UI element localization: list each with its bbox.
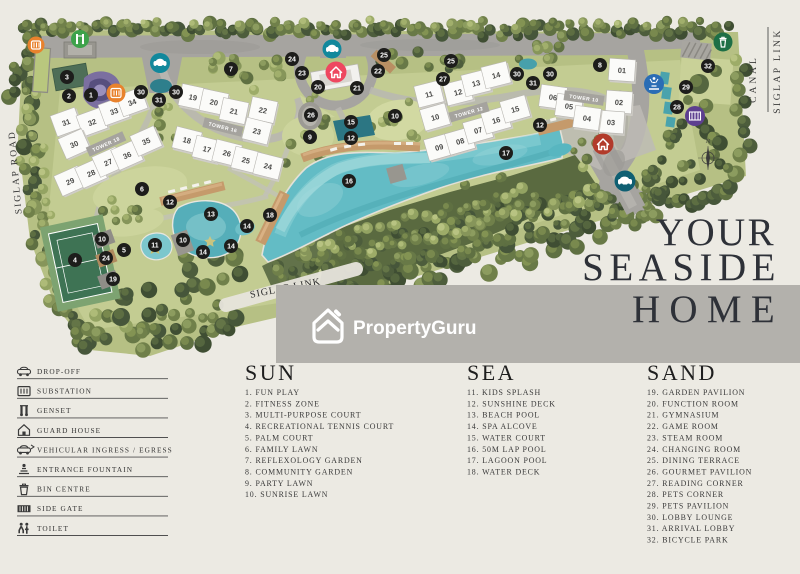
svg-text:10: 10 <box>98 236 106 243</box>
svg-text:28. PETS CORNER: 28. PETS CORNER <box>647 490 724 499</box>
svg-text:22: 22 <box>374 68 382 75</box>
svg-text:26. GOURMET PAVILION: 26. GOURMET PAVILION <box>647 467 752 476</box>
svg-text:10: 10 <box>179 237 187 244</box>
svg-text:18: 18 <box>266 212 274 219</box>
svg-text:6. FAMILY LAWN: 6. FAMILY LAWN <box>245 445 318 454</box>
svg-text:9. PARTY LAWN: 9. PARTY LAWN <box>245 479 313 488</box>
svg-text:SIGLAP LINK: SIGLAP LINK <box>773 28 783 113</box>
svg-text:02: 02 <box>614 98 623 108</box>
svg-text:HOME: HOME <box>632 288 784 331</box>
svg-text:18. WATER DECK: 18. WATER DECK <box>467 467 540 476</box>
svg-text:25: 25 <box>447 58 455 65</box>
svg-text:21: 21 <box>353 85 361 92</box>
svg-text:29: 29 <box>682 84 690 91</box>
svg-text:19: 19 <box>109 276 117 283</box>
svg-text:PropertyGuru: PropertyGuru <box>353 318 477 339</box>
svg-text:01: 01 <box>617 66 626 76</box>
svg-text:SEA: SEA <box>467 360 516 385</box>
svg-text:11. KIDS SPLASH: 11. KIDS SPLASH <box>467 388 541 397</box>
svg-text:5: 5 <box>122 247 126 254</box>
svg-text:CANAL: CANAL <box>749 55 759 103</box>
svg-text:23: 23 <box>298 70 306 77</box>
svg-text:1: 1 <box>89 92 93 99</box>
svg-text:27. READING CORNER: 27. READING CORNER <box>647 479 744 488</box>
svg-text:30: 30 <box>172 89 180 96</box>
svg-text:31: 31 <box>529 80 537 87</box>
svg-text:14: 14 <box>243 223 251 230</box>
svg-text:25: 25 <box>380 52 388 59</box>
svg-text:9: 9 <box>308 134 312 141</box>
svg-text:31: 31 <box>155 97 163 104</box>
svg-text:SUN: SUN <box>245 360 297 385</box>
svg-text:16. 50M LAP POOL: 16. 50M LAP POOL <box>467 445 547 454</box>
svg-text:16: 16 <box>345 178 353 185</box>
svg-text:8: 8 <box>598 62 602 69</box>
svg-text:24: 24 <box>102 255 110 262</box>
svg-text:2. FITNESS ZONE: 2. FITNESS ZONE <box>245 399 320 408</box>
svg-text:26: 26 <box>307 112 315 119</box>
svg-text:SIDE GATE: SIDE GATE <box>37 504 84 513</box>
svg-text:31. ARRIVAL LOBBY: 31. ARRIVAL LOBBY <box>647 524 735 533</box>
svg-text:3. MULTI-PURPOSE COURT: 3. MULTI-PURPOSE COURT <box>245 411 361 420</box>
svg-text:GENSET: GENSET <box>37 406 72 415</box>
svg-text:4: 4 <box>73 257 77 264</box>
svg-text:TOILET: TOILET <box>37 524 69 533</box>
svg-text:20: 20 <box>314 84 322 91</box>
svg-text:29. PETS PAVILION: 29. PETS PAVILION <box>647 502 729 511</box>
svg-text:24. CHANGING ROOM: 24. CHANGING ROOM <box>647 445 741 454</box>
svg-text:8. COMMUNITY GARDEN: 8. COMMUNITY GARDEN <box>245 467 353 476</box>
svg-text:32. BICYCLE PARK: 32. BICYCLE PARK <box>647 536 729 545</box>
svg-text:ENTRANCE FOUNTAIN: ENTRANCE FOUNTAIN <box>37 465 133 474</box>
svg-text:6: 6 <box>140 186 144 193</box>
svg-text:30. LOBBY LOUNGE: 30. LOBBY LOUNGE <box>647 513 733 522</box>
svg-text:14. SPA ALCOVE: 14. SPA ALCOVE <box>467 422 538 431</box>
svg-text:7: 7 <box>229 66 233 73</box>
svg-text:13. BEACH POOL: 13. BEACH POOL <box>467 411 540 420</box>
svg-text:GUARD HOUSE: GUARD HOUSE <box>37 426 101 435</box>
svg-text:11: 11 <box>151 242 159 249</box>
svg-text:4. RECREATIONAL TENNIS COURT: 4. RECREATIONAL TENNIS COURT <box>245 422 394 431</box>
svg-text:30: 30 <box>513 71 521 78</box>
svg-text:28: 28 <box>673 104 681 111</box>
svg-text:SEASIDE: SEASIDE <box>582 246 781 289</box>
svg-text:VEHICULAR INGRESS / EGRESS: VEHICULAR INGRESS / EGRESS <box>37 445 173 454</box>
svg-text:14: 14 <box>199 249 207 256</box>
svg-text:15. WATER COURT: 15. WATER COURT <box>467 433 546 442</box>
svg-text:N: N <box>706 138 711 145</box>
svg-text:21. GYMNASIUM: 21. GYMNASIUM <box>647 411 719 420</box>
svg-text:10. SUNRISE LAWN: 10. SUNRISE LAWN <box>245 490 328 499</box>
svg-text:15: 15 <box>347 119 355 126</box>
svg-text:20. FUNCTION ROOM: 20. FUNCTION ROOM <box>647 399 739 408</box>
svg-text:06: 06 <box>548 92 558 102</box>
svg-text:DROP-OFF: DROP-OFF <box>37 367 81 376</box>
svg-text:2: 2 <box>67 93 71 100</box>
svg-text:03: 03 <box>606 118 615 128</box>
svg-text:3: 3 <box>65 74 69 81</box>
svg-text:SAND: SAND <box>647 360 717 385</box>
svg-text:12. SUNSHINE DECK: 12. SUNSHINE DECK <box>467 399 556 408</box>
svg-text:22. GAME ROOM: 22. GAME ROOM <box>647 422 719 431</box>
svg-text:12: 12 <box>536 122 544 129</box>
svg-text:23. STEAM ROOM: 23. STEAM ROOM <box>647 433 723 442</box>
svg-text:12: 12 <box>347 135 355 142</box>
svg-text:32: 32 <box>704 63 712 70</box>
svg-text:13: 13 <box>207 211 215 218</box>
svg-text:30: 30 <box>546 71 554 78</box>
svg-text:SUBSTATION: SUBSTATION <box>37 387 92 396</box>
svg-text:24: 24 <box>288 56 296 63</box>
svg-text:7. REFLEXOLOGY GARDEN: 7. REFLEXOLOGY GARDEN <box>245 456 363 465</box>
svg-text:10: 10 <box>391 113 399 120</box>
svg-text:12: 12 <box>166 199 174 206</box>
svg-text:5. PALM COURT: 5. PALM COURT <box>245 433 313 442</box>
svg-text:17: 17 <box>502 150 510 157</box>
svg-text:BIN CENTRE: BIN CENTRE <box>37 485 91 494</box>
svg-text:27: 27 <box>439 76 447 83</box>
svg-text:05: 05 <box>564 101 574 111</box>
svg-text:14: 14 <box>227 243 235 250</box>
svg-text:30: 30 <box>137 89 145 96</box>
svg-text:19. GARDEN PAVILION: 19. GARDEN PAVILION <box>647 388 745 397</box>
svg-text:25. DINING TERRACE: 25. DINING TERRACE <box>647 456 740 465</box>
svg-text:1. FUN PLAY: 1. FUN PLAY <box>245 388 300 397</box>
svg-text:17. LAGOON POOL: 17. LAGOON POOL <box>467 456 547 465</box>
